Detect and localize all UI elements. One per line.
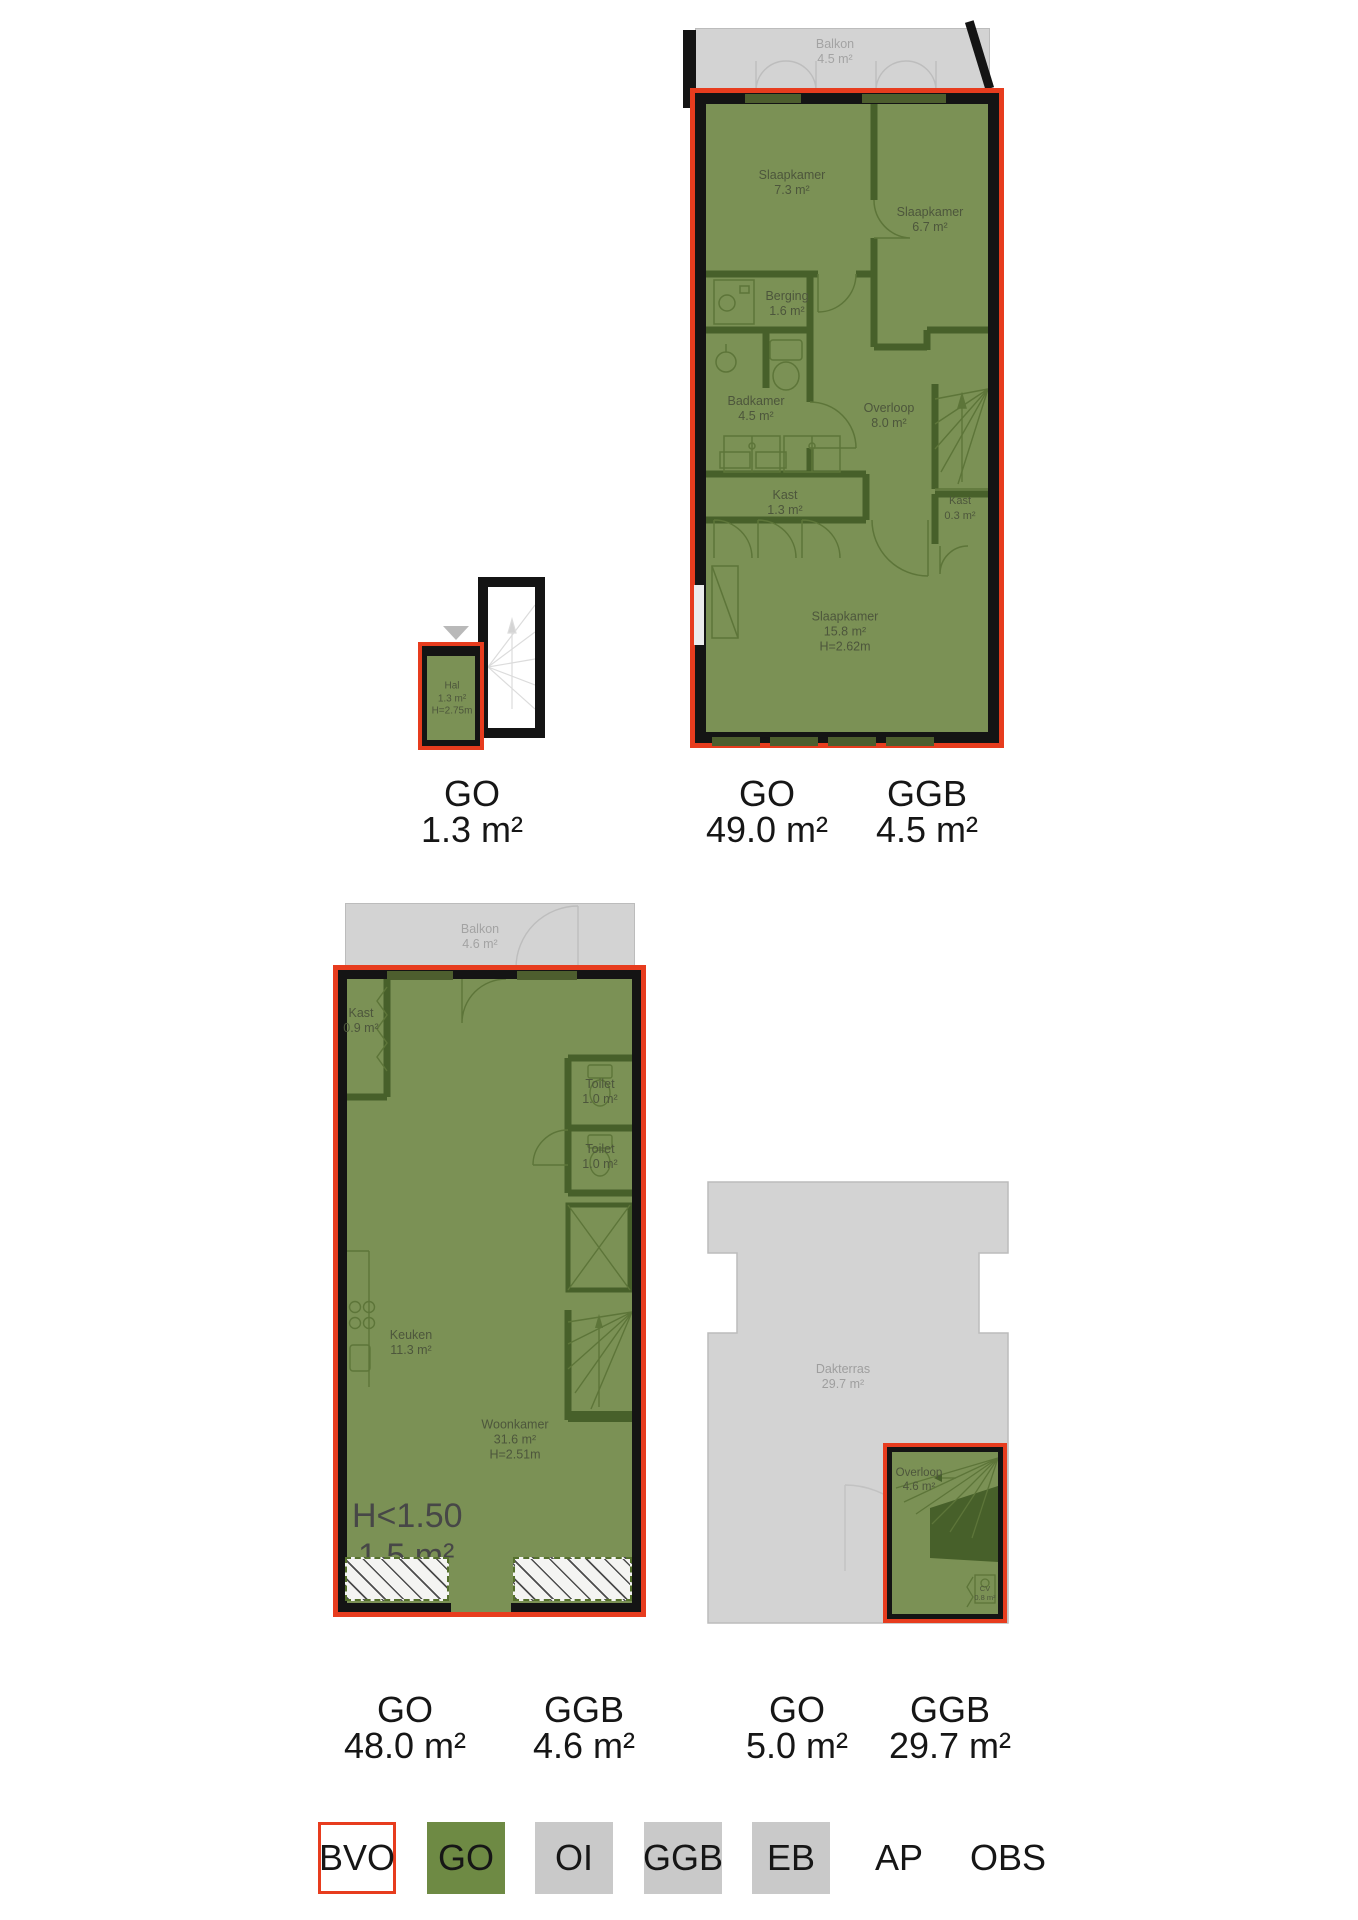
room-name: Keuken bbox=[390, 1328, 432, 1343]
area-code: GO bbox=[746, 1692, 848, 1728]
stairs-icon bbox=[488, 587, 535, 728]
room-area: 0.8 m² bbox=[974, 1593, 995, 1602]
area-value: 29.7 m² bbox=[889, 1728, 1011, 1764]
room-area: 1.6 m² bbox=[765, 304, 808, 319]
room-label-slaapkamer-3: Slaapkamer 15.8 m² H=2.62m bbox=[812, 610, 879, 655]
room-area: 4.5 m² bbox=[728, 409, 785, 424]
room-height: H=2.51m bbox=[481, 1448, 548, 1463]
legend-item-go: GO bbox=[427, 1822, 505, 1894]
room-area: 7.3 m² bbox=[759, 183, 826, 198]
stairs-icon bbox=[935, 389, 988, 489]
room-area: 4.5 m² bbox=[816, 52, 854, 67]
room-label-slaapkamer-1: Slaapkamer 7.3 m² bbox=[759, 168, 826, 198]
area-value: 4.6 m² bbox=[533, 1728, 635, 1764]
room-label-keuken: Keuken 11.3 m² bbox=[390, 1328, 432, 1358]
room-area: 4.6 m² bbox=[896, 1480, 943, 1494]
legend-item-oi: OI bbox=[535, 1822, 613, 1894]
legend-label: OI bbox=[555, 1837, 593, 1879]
area-label-go-roof: GO 5.0 m² bbox=[746, 1692, 848, 1764]
room-area: 1.3 m² bbox=[432, 693, 473, 706]
legend-label: GO bbox=[438, 1837, 494, 1879]
room-area: 1.3 m² bbox=[767, 503, 802, 518]
legend-item-ap: AP bbox=[875, 1822, 923, 1894]
area-label-go-hal: GO 1.3 m² bbox=[421, 776, 523, 848]
area-value: 1.3 m² bbox=[421, 812, 523, 848]
area-code: GO bbox=[344, 1692, 466, 1728]
room-label-kast-1: Kast 1.3 m² bbox=[767, 488, 802, 518]
room-name: CV bbox=[974, 1584, 995, 1593]
room-label-toilet-1: Toilet 1.0 m² bbox=[582, 1077, 617, 1107]
room-area: 0.9 m² bbox=[343, 1021, 378, 1036]
room-area: 11.3 m² bbox=[390, 1343, 432, 1358]
area-label-ggb-roof: GGB 29.7 m² bbox=[889, 1692, 1011, 1764]
legend-item-eb: EB bbox=[752, 1822, 830, 1894]
low-height-hatch-right bbox=[513, 1557, 632, 1601]
room-area: 1.0 m² bbox=[582, 1157, 617, 1172]
area-value: 5.0 m² bbox=[746, 1728, 848, 1764]
room-area: 31.6 m² bbox=[481, 1433, 548, 1448]
room-name: Balkon bbox=[461, 922, 499, 937]
room-name: Kast bbox=[767, 488, 802, 503]
window bbox=[828, 737, 876, 746]
area-code: GO bbox=[706, 776, 828, 812]
floorplan-sheet: Balkon 4.5 m² bbox=[0, 0, 1358, 1920]
room-label-roof-overloop: Overloop 4.6 m² bbox=[896, 1466, 943, 1494]
room-label-upper-balkon: Balkon 4.5 m² bbox=[816, 37, 854, 67]
room-name: Slaapkamer bbox=[812, 610, 879, 625]
room-name: Slaapkamer bbox=[897, 205, 964, 220]
room-name: Slaapkamer bbox=[759, 168, 826, 183]
entrance-arrow-icon bbox=[443, 626, 469, 640]
legend-item-bvo: BVO bbox=[318, 1822, 396, 1894]
room-label-kast-2: Kast 0.3 m² bbox=[944, 494, 975, 524]
window bbox=[712, 737, 760, 746]
legend-item-ggb: GGB bbox=[644, 1822, 722, 1894]
area-value: 48.0 m² bbox=[344, 1728, 466, 1764]
window bbox=[886, 737, 934, 746]
room-label-berging: Berging 1.6 m² bbox=[765, 289, 808, 319]
room-area: 8.0 m² bbox=[864, 416, 915, 431]
area-label-ggb-living: GGB 4.6 m² bbox=[533, 1692, 635, 1764]
window bbox=[745, 94, 801, 103]
room-height: H=2.75m bbox=[432, 705, 473, 718]
room-label-kast-living: Kast 0.9 m² bbox=[343, 1006, 378, 1036]
room-name: Badkamer bbox=[728, 394, 785, 409]
legend-label: EB bbox=[767, 1837, 815, 1879]
room-label-dakterras: Dakterras 29.7 m² bbox=[816, 1362, 870, 1392]
room-name: Toilet bbox=[582, 1142, 617, 1157]
room-label-living-balkon: Balkon 4.6 m² bbox=[461, 922, 499, 952]
area-code: GO bbox=[421, 776, 523, 812]
area-value: 49.0 m² bbox=[706, 812, 828, 848]
room-name: Kast bbox=[944, 494, 975, 509]
room-name: Overloop bbox=[864, 401, 915, 416]
legend-item-obs: OBS bbox=[970, 1822, 1046, 1894]
room-name: Overloop bbox=[896, 1466, 943, 1480]
room-area: 15.8 m² bbox=[812, 625, 879, 640]
legend-label: AP bbox=[875, 1837, 923, 1879]
room-name: Woonkamer bbox=[481, 1418, 548, 1433]
room-name: Berging bbox=[765, 289, 808, 304]
room-area: 6.7 m² bbox=[897, 220, 964, 235]
room-area: 4.6 m² bbox=[461, 937, 499, 952]
room-label-badkamer: Badkamer 4.5 m² bbox=[728, 394, 785, 424]
room-name: Hal bbox=[432, 680, 473, 693]
area-value: 4.5 m² bbox=[876, 812, 978, 848]
window bbox=[862, 94, 946, 103]
area-code: GGB bbox=[889, 1692, 1011, 1728]
stairs-icon bbox=[568, 1312, 632, 1422]
area-label-ggb-upper: GGB 4.5 m² bbox=[876, 776, 978, 848]
room-label-hal: Hal 1.3 m² H=2.75m bbox=[432, 680, 473, 718]
room-label-cv: CV 0.8 m² bbox=[974, 1584, 995, 1602]
area-label-go-living: GO 48.0 m² bbox=[344, 1692, 466, 1764]
room-name: Kast bbox=[343, 1006, 378, 1021]
area-code: GGB bbox=[876, 776, 978, 812]
area-label-go-upper: GO 49.0 m² bbox=[706, 776, 828, 848]
legend-label: GGB bbox=[643, 1837, 723, 1879]
room-label-woonkamer: Woonkamer 31.6 m² H=2.51m bbox=[481, 1418, 548, 1463]
legend-label: OBS bbox=[970, 1837, 1046, 1879]
room-name: Balkon bbox=[816, 37, 854, 52]
window bbox=[770, 737, 818, 746]
legend-label: BVO bbox=[319, 1837, 395, 1879]
low-height-hatch-left bbox=[345, 1557, 449, 1601]
low-height-title: H<1.50 bbox=[352, 1496, 463, 1536]
window bbox=[694, 585, 704, 645]
room-height: H=2.62m bbox=[812, 640, 879, 655]
area-code: GGB bbox=[533, 1692, 635, 1728]
room-label-slaapkamer-2: Slaapkamer 6.7 m² bbox=[897, 205, 964, 235]
room-label-overloop: Overloop 8.0 m² bbox=[864, 401, 915, 431]
room-name: Toilet bbox=[582, 1077, 617, 1092]
room-area: 29.7 m² bbox=[816, 1377, 870, 1392]
room-name: Dakterras bbox=[816, 1362, 870, 1377]
stairwell-outline bbox=[478, 577, 545, 738]
room-area: 1.0 m² bbox=[582, 1092, 617, 1107]
room-label-toilet-2: Toilet 1.0 m² bbox=[582, 1142, 617, 1172]
room-area: 0.3 m² bbox=[944, 509, 975, 524]
